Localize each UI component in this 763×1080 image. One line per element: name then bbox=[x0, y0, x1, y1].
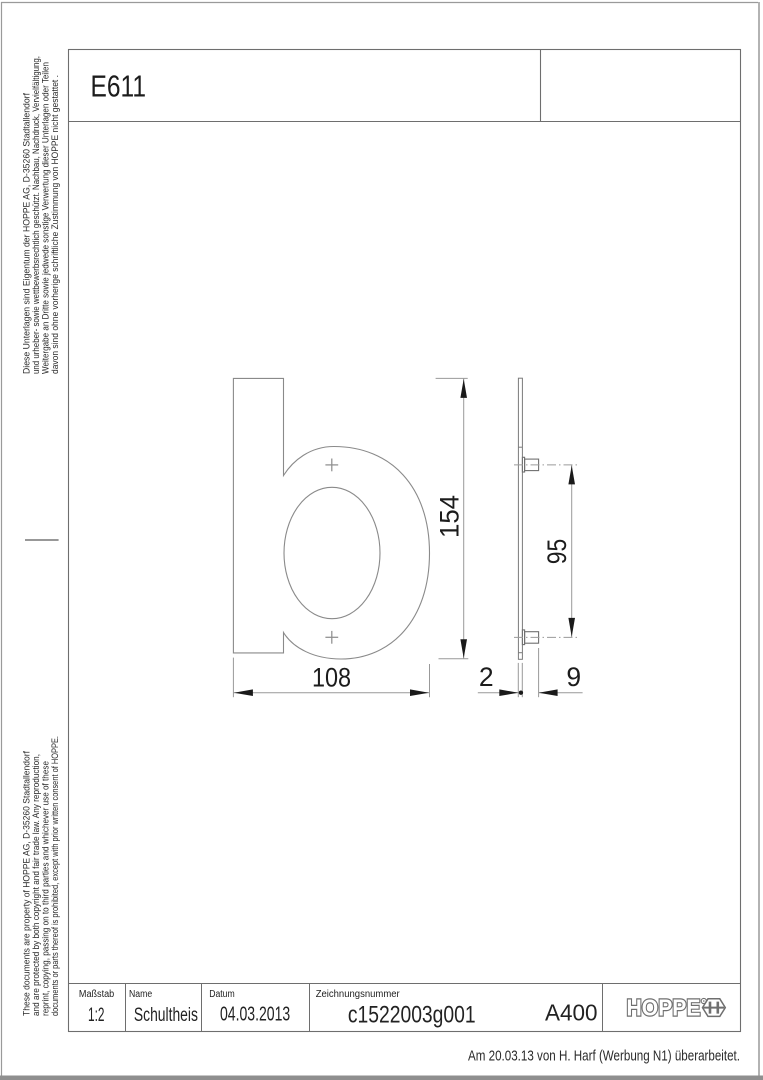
svg-text:A400: A400 bbox=[545, 1000, 598, 1026]
svg-text:Zeichnungsnummer: Zeichnungsnummer bbox=[316, 989, 401, 1000]
svg-text:154: 154 bbox=[434, 495, 464, 538]
svg-text:2: 2 bbox=[479, 662, 494, 692]
svg-text:Name: Name bbox=[129, 989, 153, 1000]
svg-text:Schultheis: Schultheis bbox=[134, 1005, 198, 1026]
svg-text:108: 108 bbox=[312, 663, 351, 693]
svg-text:95: 95 bbox=[542, 539, 572, 565]
svg-text:c1522003g001: c1522003g001 bbox=[348, 1002, 476, 1029]
svg-text:E611: E611 bbox=[91, 70, 147, 104]
svg-text:9: 9 bbox=[566, 662, 581, 692]
svg-text:davon sind ohne vorherige schr: davon sind ohne vorherige schriftliche Z… bbox=[50, 75, 60, 374]
svg-text:documents or parts thereof is: documents or parts thereof is prohibited… bbox=[50, 736, 60, 1016]
svg-text:04.03.2013: 04.03.2013 bbox=[220, 1004, 290, 1026]
svg-text:Am 20.03.13 von H. Harf (Werbu: Am 20.03.13 von H. Harf (Werbung N1) übe… bbox=[468, 1048, 740, 1065]
svg-text:HOPPE: HOPPE bbox=[627, 995, 701, 1021]
svg-text:Datum: Datum bbox=[209, 989, 235, 1000]
svg-text:1:2: 1:2 bbox=[88, 1005, 105, 1026]
svg-text:Maßstab: Maßstab bbox=[79, 989, 115, 1000]
